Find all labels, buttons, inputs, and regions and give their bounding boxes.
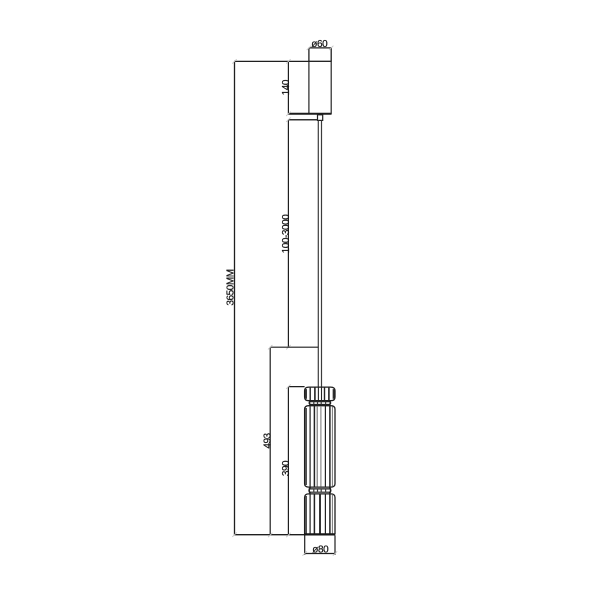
svg-text:493: 493 <box>263 432 274 448</box>
svg-text:ø80: ø80 <box>312 545 329 556</box>
svg-text:390: 390 <box>281 460 292 476</box>
svg-text:3650MM: 3650MM <box>226 269 237 305</box>
svg-text:ø60: ø60 <box>311 39 328 50</box>
svg-text:100-3000: 100-3000 <box>281 214 292 254</box>
svg-text:140: 140 <box>281 79 292 95</box>
